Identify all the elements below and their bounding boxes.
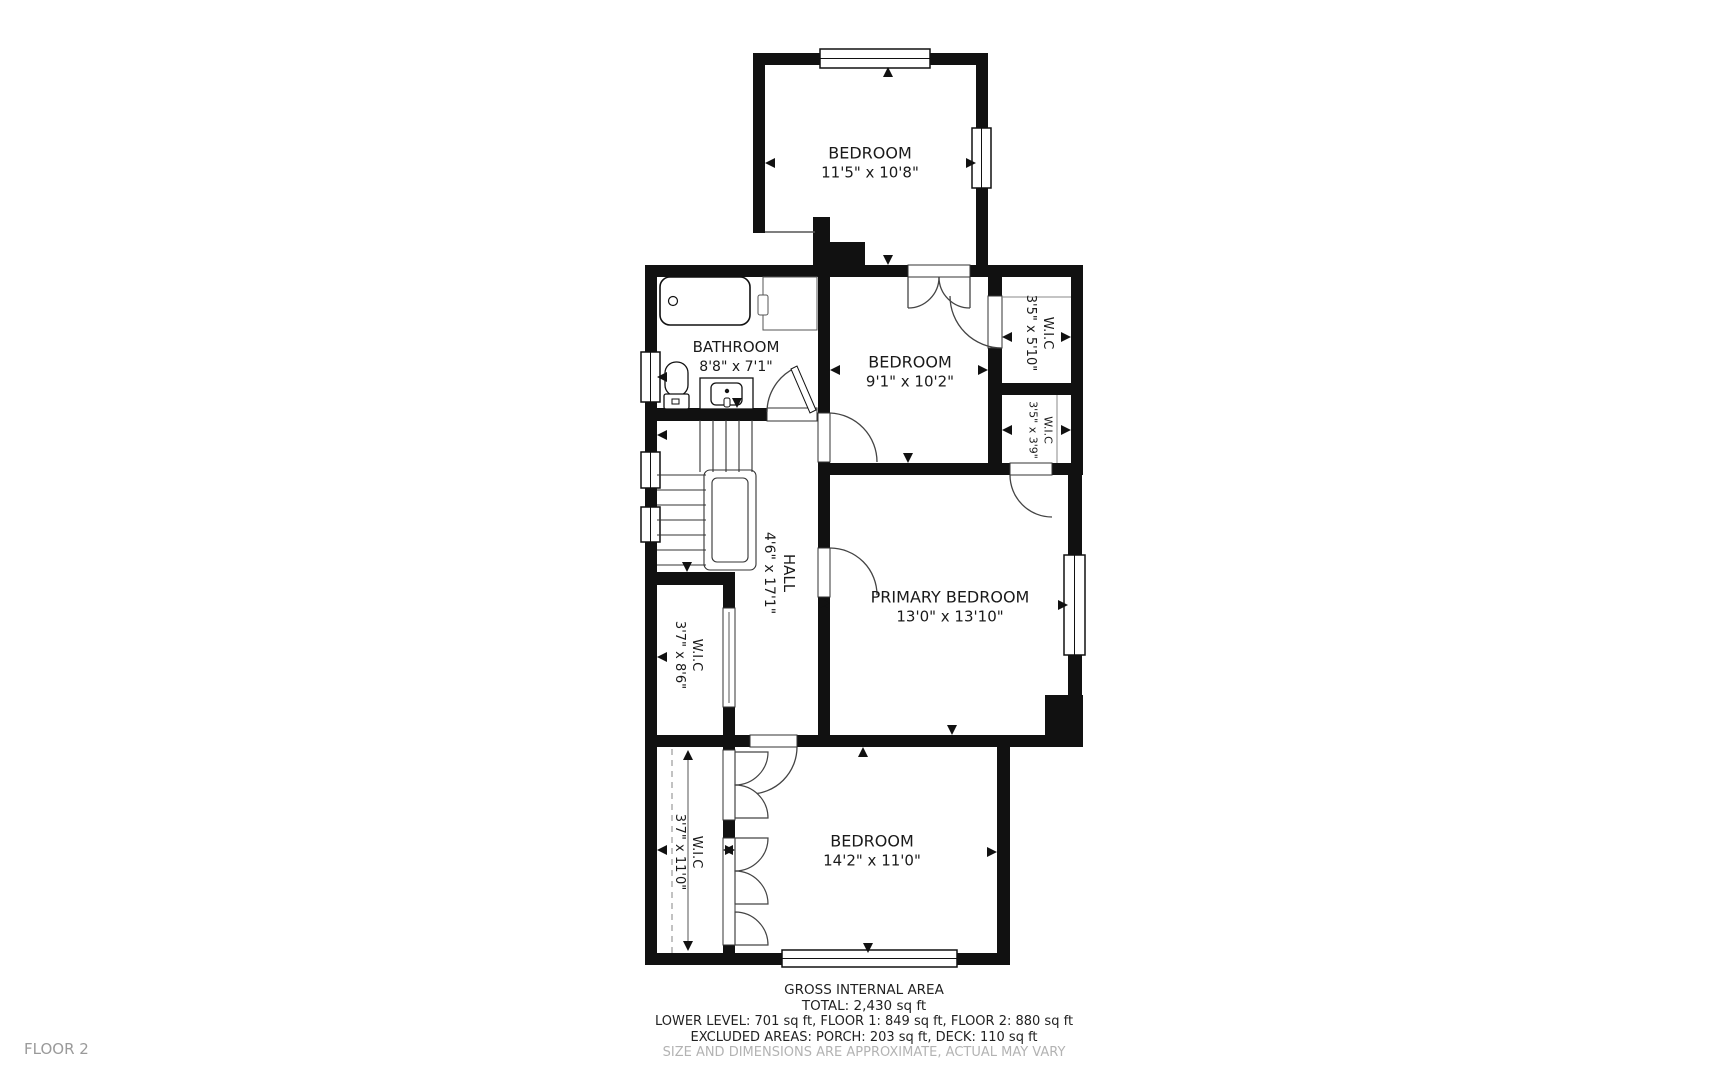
- room-dims: 4'6" x 17'1": [760, 532, 778, 614]
- total-area: TOTAL: 2,430 sq ft: [655, 999, 1073, 1015]
- floor-plan-page: BEDROOM 11'5" x 10'8" BATHROOM 8'8" x 7'…: [0, 0, 1728, 1080]
- room-label-bedroom-2: BEDROOM 9'1" x 10'2": [866, 352, 954, 393]
- room-label-wic-3: W.I.C 3'7" x 8'6": [671, 621, 705, 689]
- room-label-wic-2: W.I.C 3'5" x 3'9": [1025, 401, 1054, 459]
- room-name: PRIMARY BEDROOM: [871, 587, 1030, 608]
- room-dims: 3'5" x 5'10": [1022, 295, 1039, 371]
- shower: [758, 277, 817, 330]
- room-name: BEDROOM: [866, 352, 954, 373]
- gross-internal-area-title: GROSS INTERNAL AREA: [655, 983, 1073, 999]
- room-label-hall: HALL 4'6" x 17'1": [760, 532, 798, 614]
- room-label-bedroom-bottom: BEDROOM 14'2" x 11'0": [823, 831, 921, 872]
- room-dims: 14'2" x 11'0": [823, 852, 921, 872]
- room-label-bedroom-top: BEDROOM 11'5" x 10'8": [821, 143, 919, 184]
- room-name: BATHROOM: [693, 338, 780, 358]
- walls: [645, 53, 1083, 965]
- room-label-primary-bedroom: PRIMARY BEDROOM 13'0" x 13'10": [871, 587, 1030, 628]
- toilet: [664, 362, 689, 409]
- room-name: W.I.C: [688, 621, 705, 689]
- room-dims: 3'5" x 3'9": [1025, 401, 1040, 459]
- bathtub-drain: [669, 297, 678, 306]
- room-label-wic-4: W.I.C 3'7" x 11'0": [671, 814, 705, 890]
- room-dims: 9'1" x 10'2": [866, 373, 954, 393]
- floor-label: FLOOR 2: [24, 1040, 89, 1058]
- bifold-closet-doors: [735, 752, 768, 945]
- room-dims: 13'0" x 13'10": [871, 608, 1030, 628]
- room-name: BEDROOM: [821, 143, 919, 164]
- room-dims: 3'7" x 8'6": [671, 621, 688, 689]
- area-summary: GROSS INTERNAL AREA TOTAL: 2,430 sq ft L…: [655, 983, 1073, 1061]
- room-name: HALL: [778, 532, 798, 614]
- room-label-bathroom: BATHROOM 8'8" x 7'1": [693, 338, 780, 376]
- room-dims: 8'8" x 7'1": [693, 358, 780, 376]
- level-areas: LOWER LEVEL: 701 sq ft, FLOOR 1: 849 sq …: [655, 1014, 1073, 1030]
- room-name: W.I.C: [1039, 295, 1056, 371]
- disclaimer: SIZE AND DIMENSIONS ARE APPROXIMATE, ACT…: [655, 1045, 1073, 1061]
- excluded-areas: EXCLUDED AREAS: PORCH: 203 sq ft, DECK: …: [655, 1030, 1073, 1046]
- windows: [641, 49, 1085, 967]
- sink-vanity: [700, 378, 753, 409]
- stair-rail-inner: [712, 478, 748, 562]
- room-dims: 3'7" x 11'0": [671, 814, 688, 890]
- room-name: W.I.C: [688, 814, 705, 890]
- staircase: [657, 420, 756, 570]
- room-label-wic-1: W.I.C 3'5" x 5'10": [1022, 295, 1056, 371]
- room-dims: 11'5" x 10'8": [821, 164, 919, 184]
- room-name: W.I.C: [1040, 401, 1055, 459]
- room-name: BEDROOM: [823, 831, 921, 852]
